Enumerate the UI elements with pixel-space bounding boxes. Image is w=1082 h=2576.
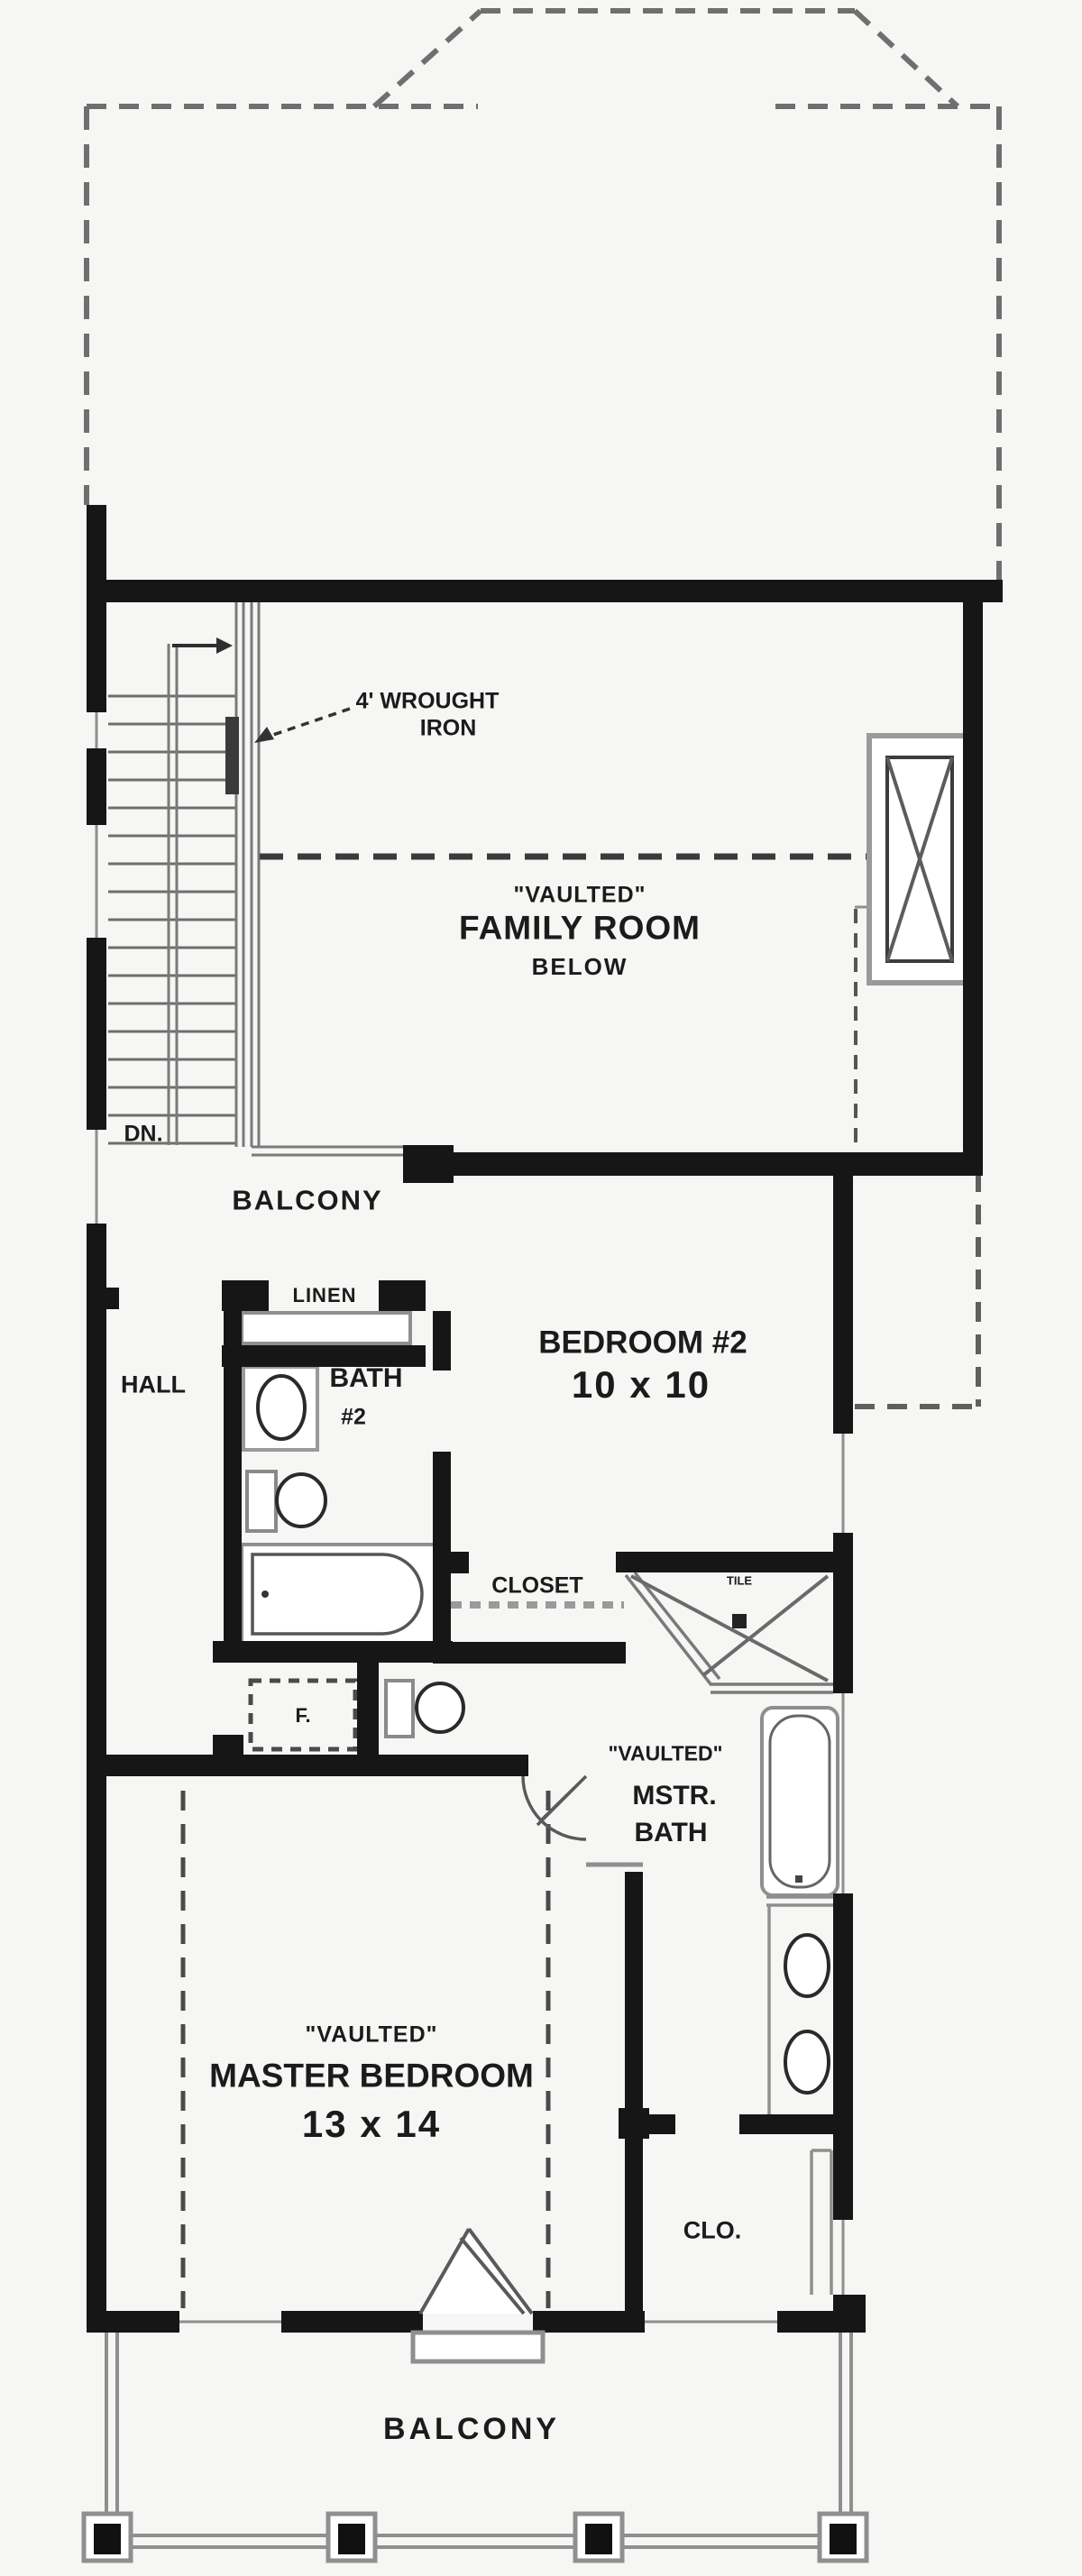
master-bedroom-dimensions: 13 x 14 xyxy=(302,2105,441,2143)
lower-roof-outline-dashed xyxy=(855,1172,978,1407)
master-tub xyxy=(762,1708,838,1895)
bedroom2-dimensions: 10 x 10 xyxy=(572,1366,711,1404)
bath2-toilet xyxy=(247,1471,326,1531)
wrought-iron-leader-arrow xyxy=(254,709,350,743)
overlook-railing xyxy=(252,591,407,1181)
family-room-below-label: BELOW xyxy=(532,955,628,978)
master-closet-label: CLO. xyxy=(683,2219,742,2243)
master-closet-shelf xyxy=(811,2150,831,2295)
bath2-tub xyxy=(242,1545,436,1643)
family-room-label: FAMILY ROOM xyxy=(459,912,701,945)
master-bath-label-line2: BATH xyxy=(634,1820,707,1847)
floor-plan: 4' WROUGHT IRON "VAULTED" FAMILY ROOM BE… xyxy=(0,0,1082,2576)
shower xyxy=(626,1572,833,1692)
chimney xyxy=(869,736,968,983)
staircase xyxy=(108,582,243,1147)
roof-outline-dashed xyxy=(87,11,999,582)
shower-tile-label: TILE xyxy=(727,1575,752,1587)
master-bath-ceiling-label: "VAULTED" xyxy=(608,1744,722,1765)
hall-label: HALL xyxy=(121,1373,186,1398)
stair-note-line1: 4' WROUGHT xyxy=(356,691,500,713)
family-room-ceiling-label: "VAULTED" xyxy=(513,885,646,907)
master-toilet xyxy=(386,1681,463,1737)
bedroom2-label: BEDROOM #2 xyxy=(538,1327,747,1359)
furnace-label: F. xyxy=(295,1706,310,1726)
master-bath-door xyxy=(523,1776,643,1865)
linen-label: LINEN xyxy=(293,1286,357,1306)
bath2-sink-vanity xyxy=(243,1367,317,1450)
master-bedroom-ceiling-label: "VAULTED" xyxy=(305,2024,437,2047)
stair-note-line2: IRON xyxy=(420,718,477,740)
bath2-number-label: #2 xyxy=(341,1407,366,1429)
exterior-balcony-label: BALCONY xyxy=(383,2414,560,2444)
linen-shelf xyxy=(242,1313,410,1343)
wrought-iron-rail-marker xyxy=(225,717,239,794)
interior-balcony-label: BALCONY xyxy=(232,1187,382,1215)
master-bedroom-label: MASTER BEDROOM xyxy=(209,2059,534,2093)
floor-plan-drawing xyxy=(0,0,1082,2576)
master-bath-label-line1: MSTR. xyxy=(632,1783,716,1810)
stair-direction-label: DN. xyxy=(124,1123,162,1146)
vaulted-ceiling-dashed xyxy=(183,1791,548,2308)
closet-label: CLOSET xyxy=(491,1575,582,1598)
bath2-label: BATH xyxy=(329,1365,402,1392)
stair-up-arrow xyxy=(172,637,233,654)
entry-door xyxy=(413,2229,543,2361)
